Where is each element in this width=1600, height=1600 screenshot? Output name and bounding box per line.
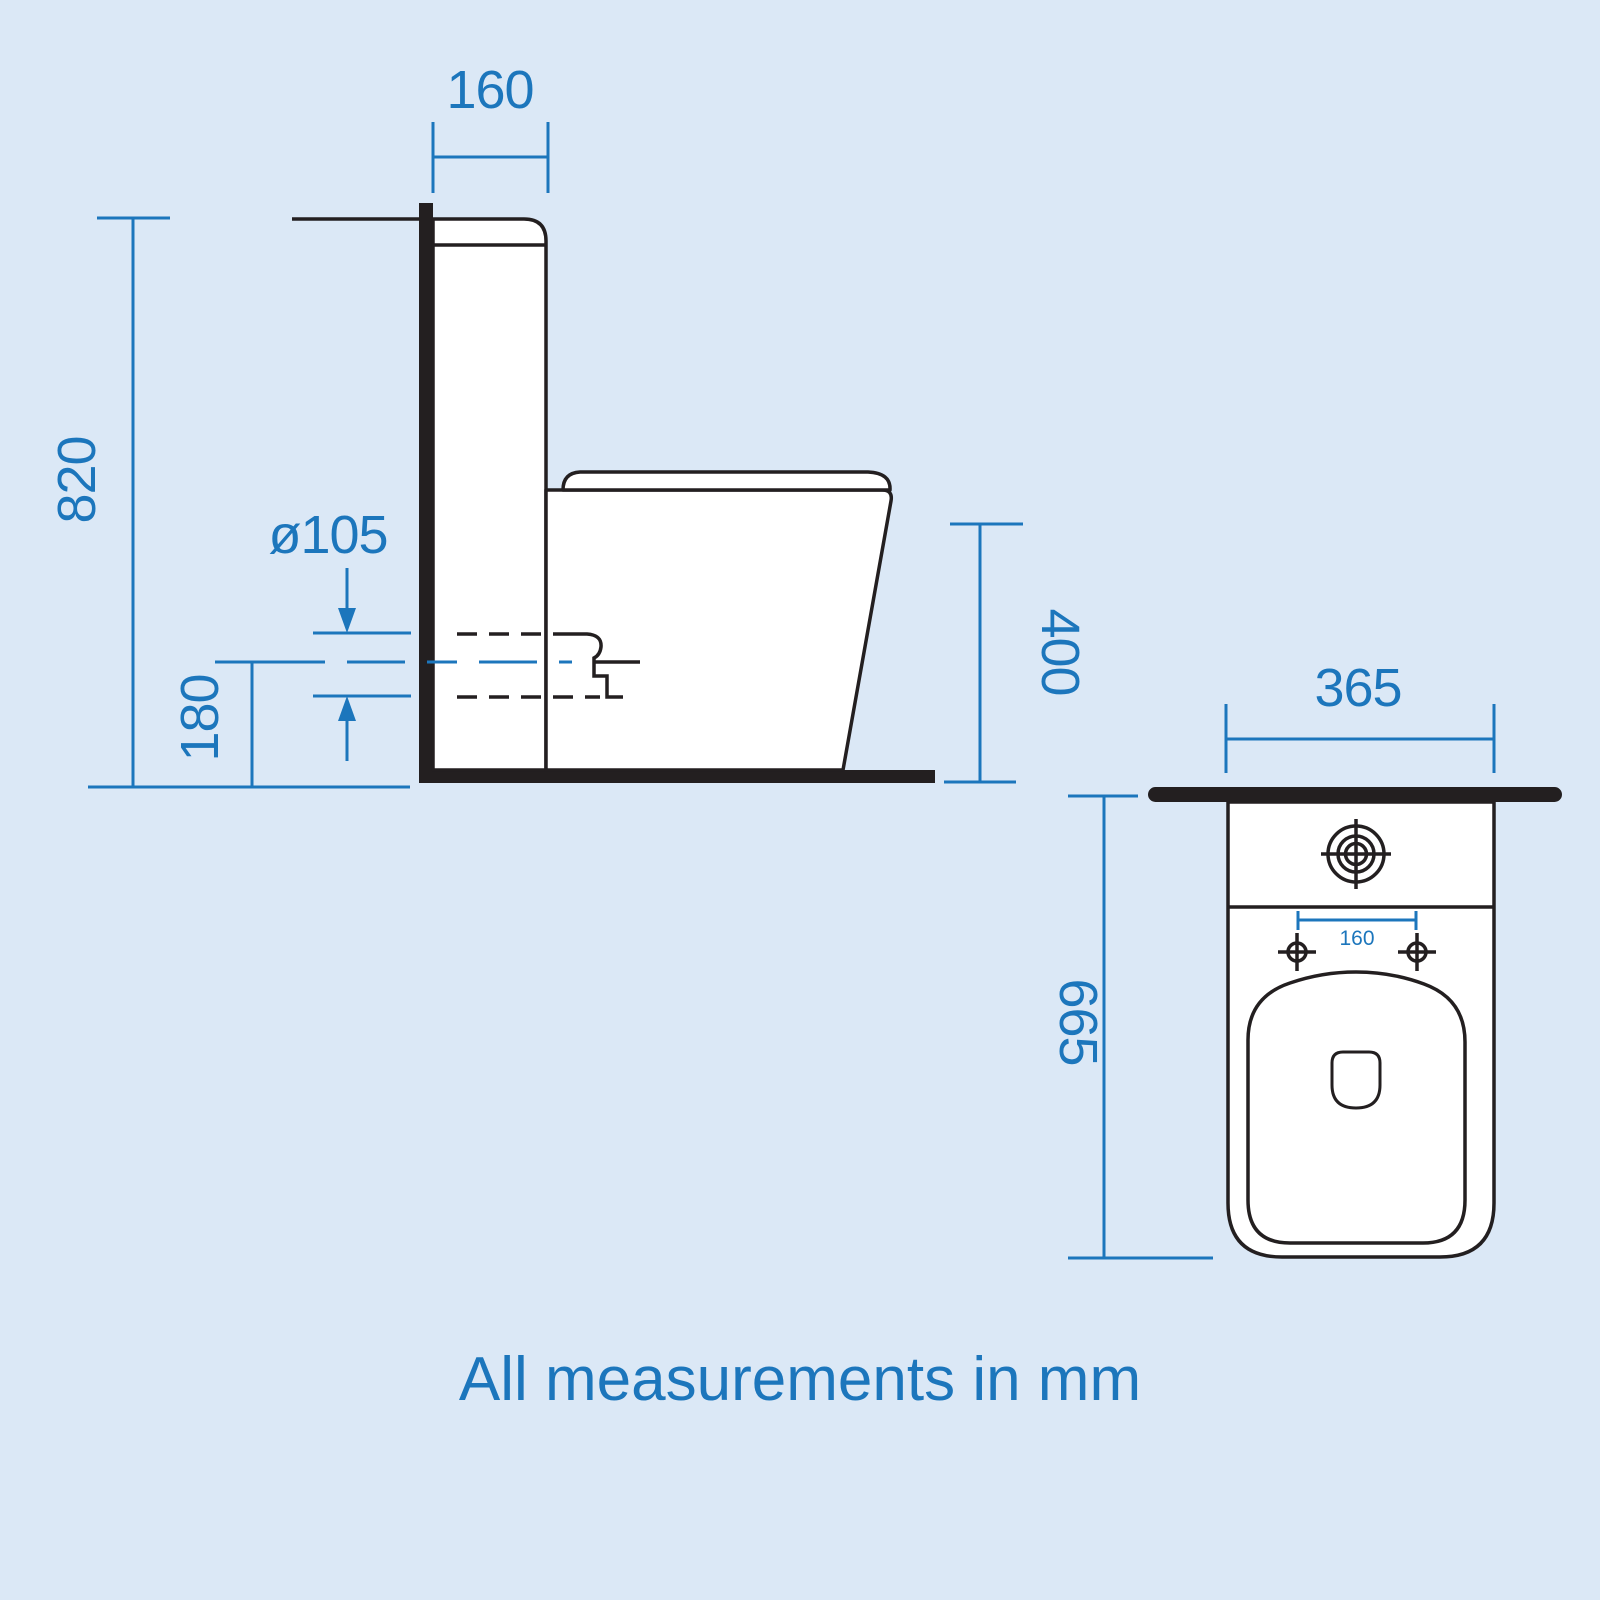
dim-cistern-depth: 160	[433, 60, 548, 193]
floor-bar	[419, 770, 935, 783]
dim-pan-width-label: 365	[1314, 658, 1401, 718]
dim-outlet-diameter: ø105	[268, 505, 411, 761]
dim-fixing-hole-spacing-label: 160	[1339, 927, 1374, 950]
caption-text: All measurements in mm	[459, 1345, 1141, 1414]
cistern-outline	[433, 219, 546, 770]
dim-outlet-centre-height-label: 180	[170, 674, 230, 761]
seat-outline	[563, 472, 890, 490]
dim-pan-depth-label: 665	[1048, 978, 1108, 1065]
dim-cistern-depth-label: 160	[446, 60, 533, 120]
technical-drawing-svg: 160 820 ø105 180	[0, 0, 1600, 1600]
dim-pan-depth: 665	[1048, 796, 1213, 1258]
dim-pan-height: 400	[944, 524, 1090, 782]
dim-outlet-diameter-label: ø105	[268, 505, 387, 565]
side-view: 160 820 ø105 180	[47, 60, 1090, 787]
outlet-opening	[1332, 1052, 1380, 1108]
wall-bar-plan	[1148, 787, 1562, 802]
pan-outline	[546, 490, 891, 770]
dim-outlet-centre-height: 180	[170, 662, 312, 787]
wall-bar	[419, 203, 433, 783]
dim-pan-width: 365	[1226, 658, 1494, 773]
dim-total-height-label: 820	[47, 436, 107, 523]
top-view: 365 160 665	[1048, 658, 1562, 1258]
dim-pan-height-label: 400	[1030, 608, 1090, 695]
